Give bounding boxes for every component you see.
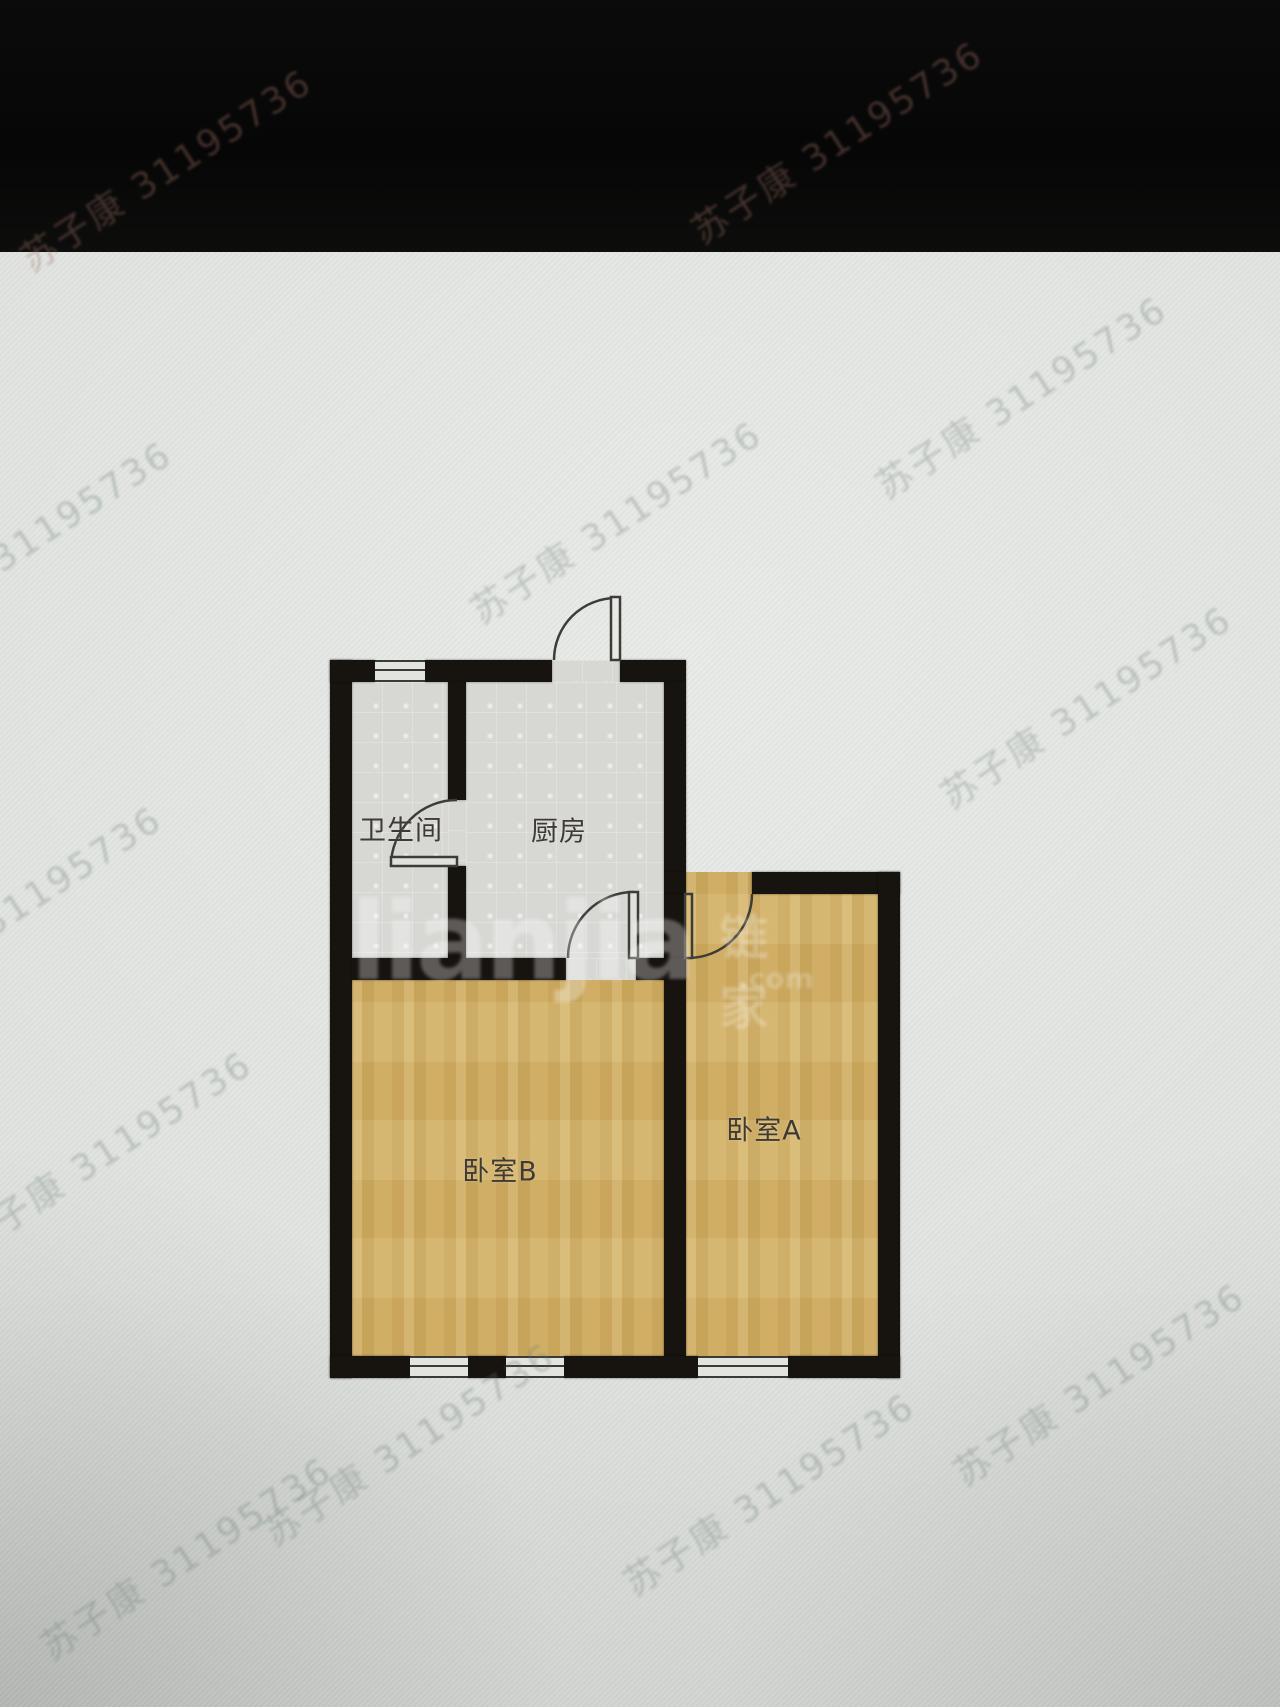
watermark-text: 苏子康 31195736 (0, 791, 171, 1019)
bathroom-label: 卫生间 (359, 809, 443, 848)
wall-top-b (425, 660, 552, 682)
kitchen-doorway (566, 958, 636, 980)
wall-right (878, 872, 900, 1378)
wall-bath-kitchen-upper (448, 682, 466, 800)
wall-top-a (330, 660, 375, 682)
watermark-text: 苏子康 31195736 (942, 1268, 1254, 1496)
wall-kitchen-bottom-a (352, 958, 566, 980)
kitchen-label: 厨房 (531, 810, 587, 849)
watermark-text: 苏子康 31195736 (0, 426, 181, 654)
wall-bath-kitchen-lower (448, 866, 466, 958)
wall-kitchen-right (664, 682, 686, 872)
bedroom-b-window-2 (506, 1356, 564, 1378)
floorplan-photo: 卫生间 厨房 卧室B 卧室A lianjia 链家 .com 苏子康 31195… (0, 0, 1280, 1707)
watermark-text: 苏子康 31195736 (864, 281, 1176, 509)
watermark-text: 苏子康 31195736 (459, 406, 771, 634)
bedroom-b-label: 卧室B (462, 1150, 538, 1189)
wall-bottom-a (330, 1356, 410, 1378)
watermark-text: 苏子康 31195736 (29, 1442, 341, 1670)
bathroom-doorway (448, 800, 466, 866)
entry-door (554, 597, 620, 660)
entry-threshold (552, 660, 620, 682)
watermark-text: 苏子康 31195736 (0, 1036, 261, 1264)
wall-left (330, 660, 352, 1378)
wall-bottom-c (564, 1356, 698, 1378)
watermark-text: 苏子康 31195736 (612, 1378, 924, 1606)
top-dark-band (0, 0, 1280, 252)
bathroom-window (375, 660, 425, 682)
wall-junction (664, 872, 686, 894)
wall-kitchen-bottom-b (636, 958, 686, 980)
bedroom-a-label: 卧室A (726, 1109, 801, 1148)
wall-top-c (620, 660, 686, 682)
bedroom-a-doorway (686, 872, 752, 894)
watermark-text: 苏子康 31195736 (929, 591, 1241, 819)
bedroom-b-window-1 (410, 1356, 468, 1378)
bedroom-a-window (698, 1356, 788, 1378)
wall-bottom-b (468, 1356, 506, 1378)
wall-bottom-d (788, 1356, 900, 1378)
